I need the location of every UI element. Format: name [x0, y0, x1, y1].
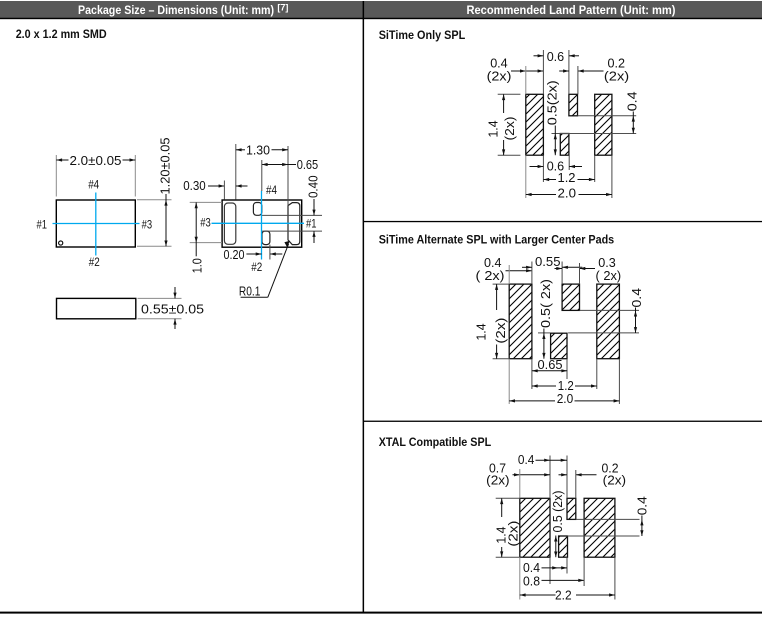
svg-text:0.55: 0.55 — [535, 254, 561, 269]
svg-text:( 2x): ( 2x) — [596, 268, 622, 283]
svg-text:0.4: 0.4 — [624, 92, 639, 112]
svg-text:0.65: 0.65 — [297, 157, 319, 172]
svg-text:#2: #2 — [251, 260, 262, 274]
svg-text:#3: #3 — [142, 217, 153, 231]
svg-text:2.0±0.05: 2.0±0.05 — [70, 153, 122, 168]
svg-text:1.30: 1.30 — [246, 143, 270, 158]
svg-text:2.0: 2.0 — [557, 391, 574, 406]
svg-text:#4: #4 — [266, 183, 277, 197]
svg-text:1.4: 1.4 — [474, 324, 489, 341]
svg-text:#2: #2 — [89, 255, 100, 269]
svg-text:Recommended Land Pattern (Unit: Recommended Land Pattern (Unit: mm) — [467, 3, 676, 17]
svg-text:(2x): (2x) — [486, 473, 509, 488]
svg-text:0.65: 0.65 — [538, 357, 563, 372]
svg-text:0.6: 0.6 — [547, 49, 565, 64]
svg-text:#1: #1 — [37, 217, 48, 231]
svg-text:(2x): (2x) — [603, 473, 626, 488]
svg-text:0.4: 0.4 — [629, 288, 644, 308]
svg-text:0.55±0.05: 0.55±0.05 — [141, 301, 204, 316]
svg-text:(2x): (2x) — [506, 521, 521, 547]
svg-text:0.5 (2x): 0.5 (2x) — [550, 491, 565, 533]
svg-text:( 2x): ( 2x) — [476, 268, 505, 283]
svg-text:SiTime Alternate SPL with Larg: SiTime Alternate SPL with Larger Center … — [379, 232, 615, 246]
svg-text:1.0: 1.0 — [190, 258, 205, 273]
svg-text:(2x): (2x) — [493, 318, 508, 344]
svg-text:0.40: 0.40 — [306, 176, 321, 199]
svg-text:#1: #1 — [306, 216, 317, 230]
svg-text:SiTime Only SPL: SiTime Only SPL — [379, 28, 466, 42]
svg-text:1.20±0.05: 1.20±0.05 — [158, 138, 173, 195]
svg-text:#3: #3 — [200, 215, 211, 229]
svg-text:1.4: 1.4 — [486, 121, 501, 138]
svg-text:1.2: 1.2 — [558, 170, 576, 185]
svg-text:0.5(2x): 0.5(2x) — [545, 80, 560, 125]
svg-text:0.30: 0.30 — [183, 178, 206, 193]
svg-text:#4: #4 — [88, 178, 99, 192]
svg-text:R0.1: R0.1 — [239, 283, 261, 298]
svg-text:0.4: 0.4 — [518, 452, 535, 467]
svg-text:0.8: 0.8 — [523, 573, 540, 588]
svg-text:(2x): (2x) — [502, 117, 517, 141]
svg-text:0.20: 0.20 — [224, 247, 245, 262]
svg-text:2.0: 2.0 — [558, 185, 577, 200]
svg-text:(2x): (2x) — [604, 69, 629, 84]
svg-text:XTAL Compatible SPL: XTAL Compatible SPL — [379, 435, 492, 449]
svg-text:2.0 x 1.2 mm SMD: 2.0 x 1.2 mm SMD — [16, 27, 107, 41]
svg-text:(2x): (2x) — [487, 69, 512, 84]
svg-text:2.2: 2.2 — [555, 587, 572, 602]
svg-text:0.4: 0.4 — [634, 496, 649, 515]
svg-text:Package Size – Dimensions (Uni: Package Size – Dimensions (Unit: mm) [7] — [78, 2, 288, 16]
svg-text:0.5( 2x): 0.5( 2x) — [538, 279, 553, 328]
